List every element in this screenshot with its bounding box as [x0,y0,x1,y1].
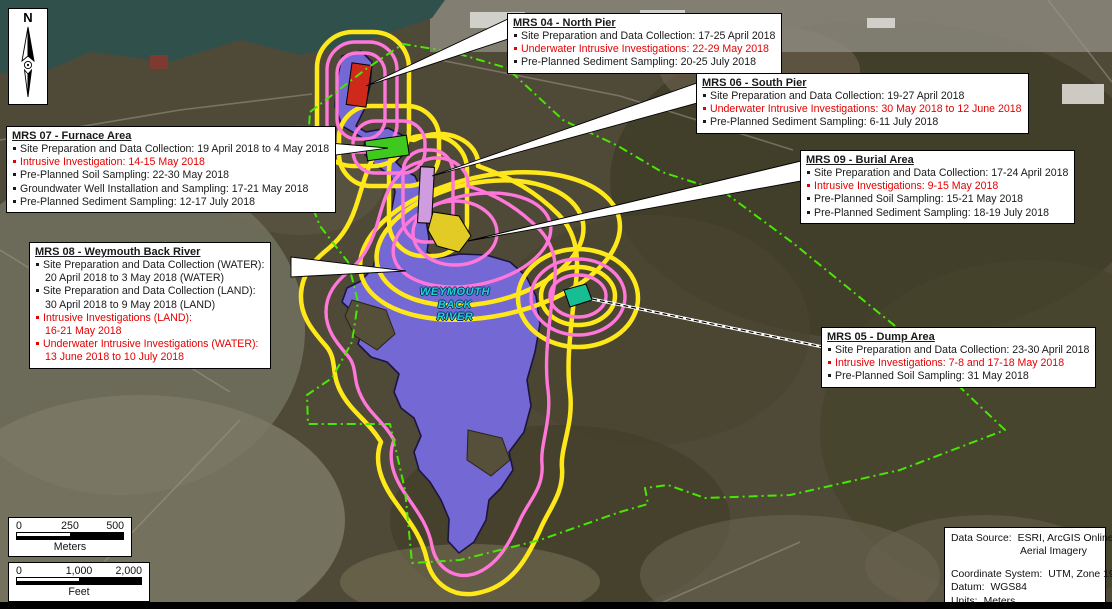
river-label-line: WEYMOUTH [400,286,510,299]
scalebar-tick: 0 [16,520,22,532]
callout-line: 20 April 2018 to 3 May 2018 (WATER) [35,272,264,285]
map-document: WEYMOUTH BACK RIVER N MRS 04 - North Pie… [0,0,1112,609]
river-label-line: BACK [400,299,510,312]
river-label: WEYMOUTH BACK RIVER [400,286,510,324]
callout-mrs-06-south-pier: MRS 06 - South PierSite Preparation and … [696,73,1029,134]
north-arrow-needle-icon [9,25,47,101]
callout-mrs-09-burial-area: MRS 09 - Burial AreaSite Preparation and… [800,150,1075,224]
callout-title-mrs-04-north-pier: MRS 04 - North Pier [513,16,775,30]
callout-line: 30 April 2018 to 9 May 2018 (LAND) [35,299,264,312]
callout-title-mrs-06-south-pier: MRS 06 - South Pier [702,76,1022,90]
scalebar-tick: 1,000 [66,565,93,577]
scalebar-tick: 250 [61,520,79,532]
credits-value: ESRI, ArcGIS Online, [1018,533,1112,544]
callout-line: Intrusive Investigation: 14-15 May 2018 [12,156,329,169]
callout-line: Intrusive Investigations (LAND): [35,312,264,325]
river-label-line: RIVER [400,311,510,324]
credits-data-source-cont: Aerial Imagery [951,545,1099,558]
callout-line: Site Preparation and Data Collection: 19… [702,90,1022,103]
credits-value: WGS84 [991,582,1027,593]
credits-datum: Datum:WGS84 [951,581,1099,594]
callout-line: Intrusive Investigations: 9-15 May 2018 [806,180,1068,193]
callout-line: Pre-Planned Soil Sampling: 31 May 2018 [827,370,1089,383]
credits-label: Data Source: [951,533,1012,544]
callout-mrs-04-north-pier: MRS 04 - North PierSite Preparation and … [507,13,782,74]
callout-line: Site Preparation and Data Collection (WA… [35,259,264,272]
callout-line: Underwater Intrusive Investigations: 30 … [702,103,1022,116]
scalebar-meters-ticks: 0 250 500 [16,520,124,532]
scalebar-tick: 0 [16,565,22,577]
map-frame-bottom [0,602,1112,609]
north-arrow-label: N [9,10,47,25]
callout-line: Site Preparation and Data Collection: 23… [827,344,1089,357]
callout-line: Intrusive Investigations: 7-8 and 17-18 … [827,357,1089,370]
callout-line: Pre-Planned Sediment Sampling: 20-25 Jul… [513,56,775,69]
callout-line: 13 June 2018 to 10 July 2018 [35,351,264,364]
callout-mrs-08-weymouth-back-river: MRS 08 - Weymouth Back RiverSite Prepara… [29,242,271,369]
credits-label: Coordinate System: [951,569,1042,580]
callout-line: Pre-Planned Soil Sampling: 22-30 May 201… [12,169,329,182]
callout-line: Site Preparation and Data Collection: 17… [806,167,1068,180]
credits-spacer [951,559,1099,568]
scalebar-bar [16,577,142,585]
north-arrow: N [8,8,48,105]
scalebar-unit-label: Meters [16,541,124,553]
callout-line: 16-21 May 2018 [35,325,264,338]
callout-mrs-07-furnace-area: MRS 07 - Furnace AreaSite Preparation an… [6,126,336,213]
callout-line: Pre-Planned Sediment Sampling: 18-19 Jul… [806,207,1068,220]
scalebar-feet-ticks: 0 1,000 2,000 [16,565,142,577]
callout-line: Site Preparation and Data Collection: 17… [513,30,775,43]
callout-line: Pre-Planned Sediment Sampling: 12-17 Jul… [12,196,329,209]
credits-coordinate-system: Coordinate System:UTM, Zone 19N [951,568,1099,581]
callout-title-mrs-09-burial-area: MRS 09 - Burial Area [806,153,1068,167]
callout-line: Underwater Intrusive Investigations (WAT… [35,338,264,351]
scalebar-meters: 0 250 500 Meters [8,517,132,557]
callout-line: Site Preparation and Data Collection: 19… [12,143,329,156]
callout-line: Pre-Planned Sediment Sampling: 6-11 July… [702,116,1022,129]
scalebar-bar [16,532,124,540]
credits-label: Datum: [951,582,985,593]
callout-title-mrs-07-furnace-area: MRS 07 - Furnace Area [12,129,329,143]
scalebar-tick: 2,000 [115,565,142,577]
credits-box: Data Source:ESRI, ArcGIS Online, Aerial … [944,527,1106,609]
credits-value: Aerial Imagery [1020,546,1087,557]
callout-line: Site Preparation and Data Collection (LA… [35,285,264,298]
callout-line: Groundwater Well Installation and Sampli… [12,183,329,196]
callout-title-mrs-05-dump-area: MRS 05 - Dump Area [827,330,1089,344]
credits-data-source: Data Source:ESRI, ArcGIS Online, [951,532,1099,545]
callout-title-mrs-08-weymouth-back-river: MRS 08 - Weymouth Back River [35,245,264,259]
callout-line: Pre-Planned Soil Sampling: 15-21 May 201… [806,193,1068,206]
callout-mrs-05-dump-area: MRS 05 - Dump AreaSite Preparation and D… [821,327,1096,388]
callout-line: Underwater Intrusive Investigations: 22-… [513,43,775,56]
credits-value: UTM, Zone 19N [1048,569,1112,580]
scalebar-unit-label: Feet [16,586,142,598]
scalebar-feet: 0 1,000 2,000 Feet [8,562,150,602]
scalebar-tick: 500 [106,520,124,532]
